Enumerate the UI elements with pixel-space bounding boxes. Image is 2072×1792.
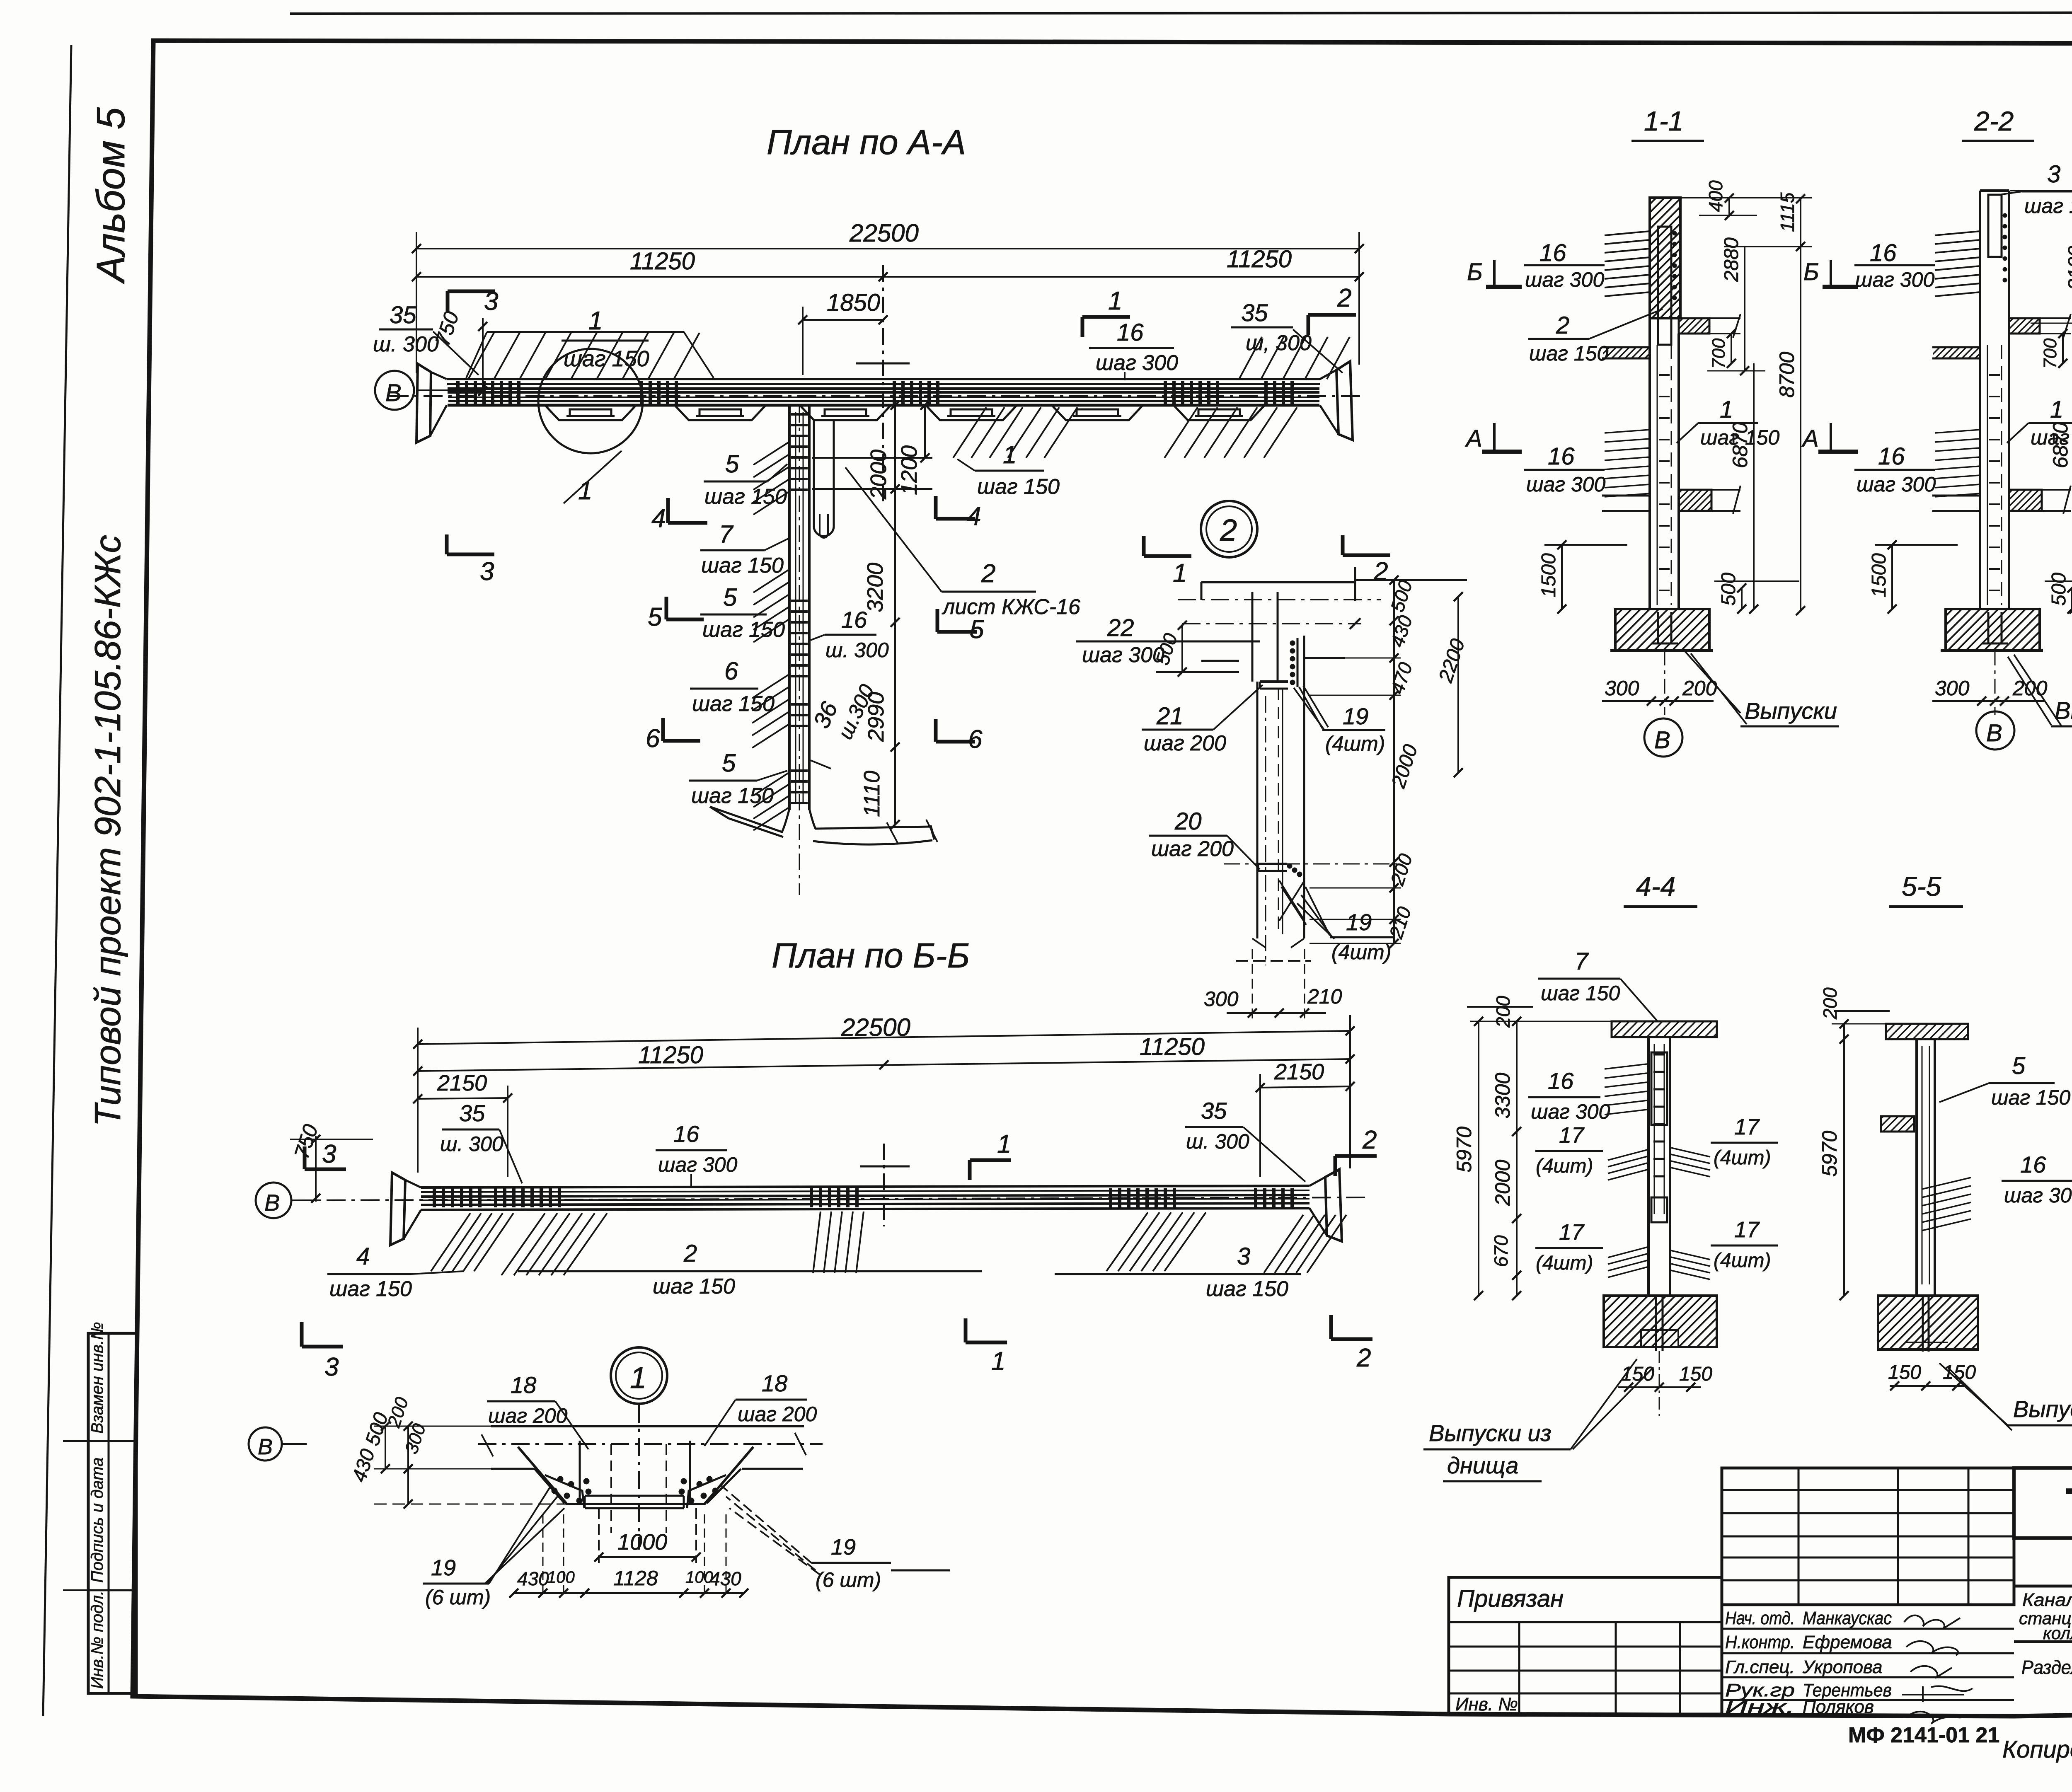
svg-text:В: В bbox=[258, 1434, 273, 1459]
svg-text:Б: Б bbox=[1467, 259, 1483, 285]
svg-text:Альбом 5: Альбом 5 bbox=[89, 107, 133, 284]
svg-text:1: 1 bbox=[1720, 396, 1733, 423]
svg-text:3: 3 bbox=[484, 287, 498, 316]
svg-text:4-4: 4-4 bbox=[1636, 871, 1675, 902]
svg-text:Инв. №: Инв. № bbox=[1455, 1694, 1518, 1715]
svg-text:План по А-А: План по А-А bbox=[767, 123, 966, 162]
svg-text:шаг 150: шаг 150 bbox=[1529, 342, 1608, 365]
svg-text:Инв.№ подл.: Инв.№ подл. bbox=[88, 1591, 107, 1689]
svg-text:1: 1 bbox=[991, 1347, 1005, 1376]
svg-text:5: 5 bbox=[725, 450, 739, 478]
svg-text:(4шт): (4шт) bbox=[1536, 1252, 1593, 1274]
svg-text:16: 16 bbox=[673, 1121, 700, 1147]
svg-text:3300: 3300 bbox=[1491, 1073, 1514, 1119]
svg-text:2: 2 bbox=[1337, 284, 1351, 312]
svg-text:19: 19 bbox=[1346, 909, 1372, 935]
svg-text:шаг 300: шаг 300 bbox=[1096, 351, 1178, 375]
svg-text:4: 4 bbox=[651, 504, 666, 533]
svg-text:Копировал Иванова: Копировал Иванова bbox=[2002, 1736, 2072, 1763]
svg-text:2: 2 bbox=[1373, 557, 1388, 586]
svg-text:18: 18 bbox=[762, 1370, 787, 1396]
svg-text:6: 6 bbox=[968, 725, 983, 754]
svg-text:500: 500 bbox=[1718, 573, 1740, 606]
svg-text:4: 4 bbox=[356, 1243, 370, 1270]
svg-text:шаг 200: шаг 200 bbox=[1151, 837, 1234, 861]
svg-text:11250: 11250 bbox=[1227, 246, 1292, 273]
svg-text:шаг 150: шаг 150 bbox=[1206, 1277, 1288, 1301]
svg-text:11250: 11250 bbox=[630, 248, 695, 275]
svg-text:2000: 2000 bbox=[1491, 1160, 1514, 1206]
svg-text:3: 3 bbox=[324, 1353, 339, 1381]
svg-text:шаг 300: шаг 300 bbox=[1525, 268, 1604, 291]
svg-text:100: 100 bbox=[547, 1568, 575, 1586]
svg-text:5970: 5970 bbox=[1452, 1127, 1476, 1173]
svg-text:19: 19 bbox=[1343, 703, 1368, 729]
svg-text:150: 150 bbox=[1679, 1363, 1712, 1385]
svg-text:20: 20 bbox=[1174, 808, 1202, 835]
svg-text:шаг 300: шаг 300 bbox=[1855, 268, 1934, 291]
svg-text:1: 1 bbox=[1173, 559, 1187, 588]
svg-text:300: 300 bbox=[1605, 677, 1639, 700]
svg-text:7: 7 bbox=[719, 520, 734, 548]
svg-text:8700: 8700 bbox=[1775, 352, 1798, 398]
svg-text:430: 430 bbox=[517, 1568, 549, 1589]
svg-text:3: 3 bbox=[1237, 1243, 1250, 1270]
svg-text:11250: 11250 bbox=[638, 1042, 703, 1069]
svg-text:2: 2 bbox=[981, 559, 995, 588]
svg-text:2: 2 bbox=[1362, 1126, 1377, 1154]
svg-text:16: 16 bbox=[2020, 1151, 2046, 1178]
svg-text:А: А bbox=[1465, 425, 1482, 452]
svg-text:16: 16 bbox=[1870, 239, 1897, 266]
svg-text:670: 670 bbox=[1490, 1235, 1512, 1267]
svg-text:(6 шт): (6 шт) bbox=[816, 1568, 881, 1591]
svg-text:5: 5 bbox=[2012, 1052, 2026, 1079]
svg-text:1200: 1200 bbox=[897, 445, 922, 495]
svg-text:35: 35 bbox=[390, 302, 416, 329]
svg-text:В: В bbox=[1986, 720, 2002, 747]
svg-text:шаг 200: шаг 200 bbox=[488, 1404, 567, 1427]
svg-text:4: 4 bbox=[967, 502, 981, 531]
svg-text:шаг 300: шаг 300 bbox=[1857, 473, 1936, 496]
svg-text:шаг 150: шаг 150 bbox=[691, 784, 774, 808]
svg-text:5970: 5970 bbox=[1818, 1131, 1841, 1177]
svg-text:ш. 300: ш. 300 bbox=[440, 1132, 503, 1156]
svg-text:6870: 6870 bbox=[1728, 422, 1752, 468]
svg-text:2: 2 bbox=[1556, 312, 1569, 339]
svg-text:МФ 2141-01 21: МФ 2141-01 21 bbox=[1848, 1723, 1999, 1747]
svg-text:шаг 150: шаг 150 bbox=[702, 618, 785, 642]
svg-text:300: 300 bbox=[1935, 677, 1970, 700]
svg-text:3: 3 bbox=[322, 1140, 336, 1168]
svg-text:шаг 150: шаг 150 bbox=[2024, 194, 2072, 218]
svg-text:3100: 3100 bbox=[2065, 246, 2072, 290]
svg-text:шаг 200: шаг 200 bbox=[738, 1403, 817, 1426]
svg-text:Поляков: Поляков bbox=[1803, 1697, 1874, 1717]
svg-text:(4шт): (4шт) bbox=[1714, 1250, 1771, 1272]
svg-text:1000: 1000 bbox=[617, 1530, 667, 1555]
svg-text:1-1: 1-1 bbox=[1644, 106, 1683, 136]
svg-text:шаг 150: шаг 150 bbox=[701, 554, 784, 578]
svg-text:11250: 11250 bbox=[1140, 1033, 1205, 1060]
svg-text:400: 400 bbox=[1705, 180, 1726, 212]
svg-text:16: 16 bbox=[1548, 1068, 1574, 1094]
svg-text:шаг 300: шаг 300 bbox=[1082, 643, 1164, 667]
svg-text:2: 2 bbox=[1356, 1344, 1371, 1372]
svg-text:Манкаускас: Манкаускас bbox=[1803, 1608, 1892, 1628]
svg-text:1: 1 bbox=[997, 1130, 1011, 1158]
svg-text:В: В bbox=[385, 380, 402, 406]
svg-text:3200: 3200 bbox=[863, 563, 888, 612]
svg-text:1: 1 bbox=[588, 307, 603, 335]
svg-text:Ефремова: Ефремова bbox=[1803, 1632, 1892, 1652]
svg-text:2150: 2150 bbox=[437, 1071, 487, 1096]
svg-text:17: 17 bbox=[1559, 1220, 1585, 1245]
svg-text:(6 шт): (6 шт) bbox=[425, 1586, 491, 1609]
svg-text:6: 6 bbox=[646, 724, 660, 753]
svg-text:План по Б-Б: План по Б-Б bbox=[772, 936, 970, 975]
svg-text:1850: 1850 bbox=[827, 289, 880, 316]
svg-text:(4шт): (4шт) bbox=[1325, 732, 1385, 755]
svg-text:А: А bbox=[1801, 425, 1819, 452]
svg-text:16: 16 bbox=[1878, 443, 1905, 470]
svg-text:5: 5 bbox=[723, 583, 737, 611]
svg-text:16: 16 bbox=[1548, 443, 1575, 470]
svg-text:3: 3 bbox=[2047, 161, 2060, 188]
svg-text:Канализационная насосная: Канализационная насосная bbox=[2022, 1590, 2072, 1610]
svg-text:2990: 2990 bbox=[864, 692, 888, 742]
svg-text:200: 200 bbox=[1819, 987, 1841, 1020]
svg-text:Н.контр.: Н.контр. bbox=[1725, 1632, 1795, 1652]
svg-text:ш. 300: ш. 300 bbox=[373, 332, 439, 356]
svg-text:17: 17 bbox=[1734, 1115, 1760, 1139]
svg-text:В: В bbox=[1654, 727, 1670, 754]
svg-text:шаг 150: шаг 150 bbox=[653, 1274, 735, 1299]
svg-text:лист КЖС-16: лист КЖС-16 bbox=[942, 595, 1080, 619]
svg-text:6870: 6870 bbox=[2049, 422, 2072, 468]
svg-text:22500: 22500 bbox=[841, 1013, 910, 1041]
svg-text:1: 1 bbox=[1108, 287, 1122, 315]
svg-text:700: 700 bbox=[2040, 338, 2060, 369]
svg-text:шаг 150: шаг 150 bbox=[1541, 982, 1620, 1005]
svg-text:5: 5 bbox=[648, 603, 662, 631]
svg-text:Выпуски: Выпуски bbox=[1745, 698, 1837, 724]
svg-text:200: 200 bbox=[1492, 996, 1514, 1028]
svg-text:Гл.спец.: Гл.спец. bbox=[1725, 1657, 1795, 1677]
svg-text:150: 150 bbox=[1888, 1362, 1921, 1383]
svg-text:100: 100 bbox=[685, 1568, 713, 1586]
svg-text:19: 19 bbox=[431, 1555, 456, 1580]
svg-text:5: 5 bbox=[970, 615, 984, 644]
svg-text:Разделительная стенка СТм1.: Разделительная стенка СТм1. bbox=[2021, 1657, 2072, 1678]
svg-text:1: 1 bbox=[630, 1362, 646, 1395]
svg-text:150: 150 bbox=[1943, 1362, 1976, 1383]
svg-text:шаг 150: шаг 150 bbox=[329, 1277, 412, 1301]
svg-text:шаг 150: шаг 150 bbox=[1991, 1086, 2070, 1109]
svg-text:22: 22 bbox=[1107, 614, 1134, 641]
svg-text:Инж.: Инж. bbox=[1725, 1697, 1795, 1717]
svg-text:Типовой проект 902-1-105.8: Типовой проект 902-1-105.86-КЖс bbox=[87, 535, 128, 1127]
svg-text:19: 19 bbox=[831, 1535, 856, 1560]
svg-text:5: 5 bbox=[722, 749, 736, 777]
svg-text:шаг 300: шаг 300 bbox=[1531, 1100, 1610, 1123]
svg-text:3: 3 bbox=[480, 557, 494, 586]
svg-text:1110: 1110 bbox=[859, 771, 884, 817]
svg-text:1500: 1500 bbox=[1868, 553, 1890, 597]
svg-text:35: 35 bbox=[1241, 300, 1268, 326]
svg-text:днища: днища bbox=[1447, 1452, 1518, 1478]
svg-text:1128: 1128 bbox=[613, 1567, 658, 1590]
svg-text:(4шт): (4шт) bbox=[1536, 1155, 1593, 1177]
svg-text:22500: 22500 bbox=[849, 219, 919, 247]
svg-text:2-2: 2-2 bbox=[1974, 106, 2014, 136]
svg-text:2150: 2150 bbox=[1274, 1059, 1324, 1084]
svg-text:шаг 200: шаг 200 bbox=[1144, 731, 1226, 755]
svg-text:1500: 1500 bbox=[1538, 553, 1560, 597]
svg-text:7: 7 bbox=[1575, 948, 1589, 975]
svg-text:В: В bbox=[264, 1190, 280, 1216]
svg-text:(4шт): (4шт) bbox=[1714, 1147, 1771, 1169]
svg-text:ш. 300: ш. 300 bbox=[825, 638, 889, 662]
svg-text:коллектора ~ 5,5 м: коллектора ~ 5,5 м bbox=[2043, 1623, 2072, 1643]
svg-text:Б: Б bbox=[1803, 259, 1819, 285]
svg-text:Привязан: Привязан bbox=[1457, 1585, 1564, 1612]
svg-text:шаг 150: шаг 150 bbox=[977, 475, 1060, 499]
svg-text:Нач. отд.: Нач. отд. bbox=[1725, 1608, 1795, 1628]
svg-text:2: 2 bbox=[1220, 513, 1237, 547]
svg-text:шаг 150: шаг 150 bbox=[692, 692, 775, 716]
svg-text:35: 35 bbox=[459, 1100, 485, 1126]
svg-text:17: 17 bbox=[1734, 1217, 1760, 1242]
svg-text:ТП 902-1-105.86-КЖ: ТП 902-1-105.86-КЖ bbox=[2066, 1479, 2072, 1532]
svg-text:500: 500 bbox=[2048, 573, 2070, 606]
svg-text:Укропова: Укропова bbox=[1802, 1657, 1883, 1677]
svg-text:шаг 300: шаг 300 bbox=[1526, 473, 1605, 496]
svg-text:210: 210 bbox=[1307, 985, 1342, 1008]
svg-text:Подпись и дата: Подпись и дата bbox=[88, 1457, 107, 1583]
svg-text:6: 6 bbox=[724, 657, 738, 685]
svg-text:16: 16 bbox=[1117, 319, 1144, 346]
svg-text:17: 17 bbox=[1559, 1123, 1585, 1148]
svg-text:21: 21 bbox=[1156, 703, 1184, 730]
svg-text:16: 16 bbox=[1539, 239, 1566, 266]
svg-text:1: 1 bbox=[578, 476, 592, 505]
svg-text:Выпуски: Выпуски bbox=[2013, 1396, 2072, 1422]
svg-text:2880: 2880 bbox=[1721, 237, 1743, 282]
svg-text:ш. 300: ш. 300 bbox=[1186, 1130, 1249, 1153]
svg-text:300: 300 bbox=[1204, 987, 1239, 1011]
svg-text:18: 18 bbox=[511, 1372, 536, 1398]
svg-text:1: 1 bbox=[2050, 396, 2063, 423]
svg-text:Выпуски из: Выпуски из bbox=[1429, 1420, 1552, 1446]
svg-text:35: 35 bbox=[1201, 1098, 1227, 1124]
svg-text:1: 1 bbox=[1003, 441, 1017, 469]
svg-text:шаг 300: шаг 300 bbox=[658, 1153, 737, 1176]
svg-text:2: 2 bbox=[683, 1240, 697, 1267]
svg-text:шаг 300: шаг 300 bbox=[2004, 1184, 2072, 1207]
svg-text:700: 700 bbox=[1709, 338, 1729, 369]
svg-text:5-5: 5-5 bbox=[1902, 871, 1941, 902]
svg-text:Взамен инв.№: Взамен инв.№ bbox=[88, 1322, 107, 1434]
